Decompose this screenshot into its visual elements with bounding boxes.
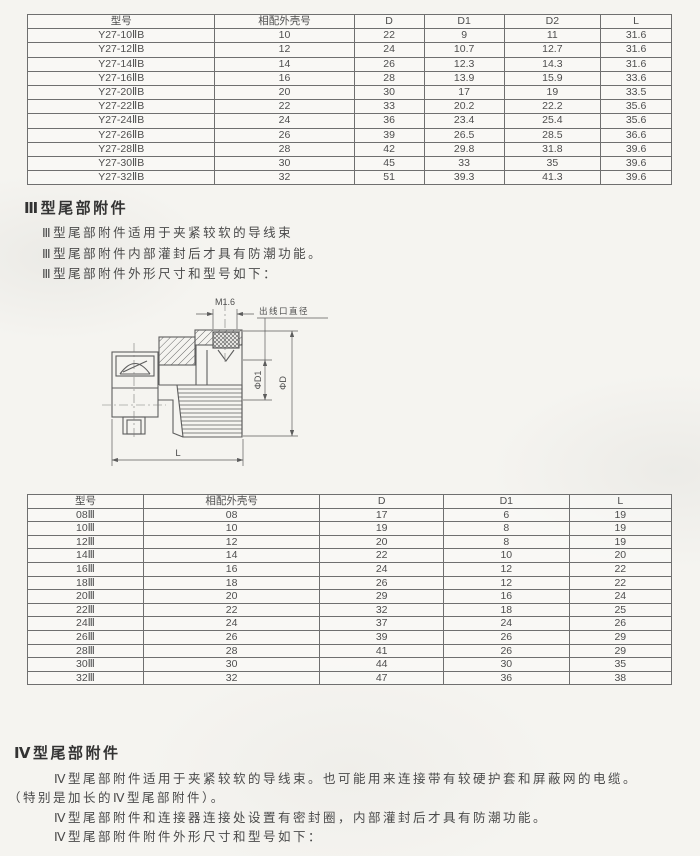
knurl-ribs xyxy=(175,389,242,433)
table-cell: 41 xyxy=(320,644,444,658)
table-cell: 32Ⅲ xyxy=(28,671,144,685)
table-cell: 39.6 xyxy=(601,156,672,170)
table-cell: 14.3 xyxy=(504,57,601,71)
table-cell: 10 xyxy=(444,549,570,563)
table-cell: 35 xyxy=(504,156,601,170)
table-row: 32Ⅲ32473638 xyxy=(28,671,672,685)
table-cell: 24 xyxy=(320,562,444,576)
table-cell: 30 xyxy=(215,156,354,170)
section4-line-2: （特别是加长的Ⅳ型尾部附件）。 xyxy=(8,787,226,806)
table-cell: 12.3 xyxy=(424,57,504,71)
table-cell: 12 xyxy=(143,535,319,549)
table-cell: 8 xyxy=(444,522,570,536)
table-cell: Y27-26ⅡB xyxy=(28,128,215,142)
table-cell: 18 xyxy=(444,603,570,617)
section-title-type3: Ⅲ型尾部附件 xyxy=(24,197,128,218)
table-cell: 32 xyxy=(320,603,444,617)
table-cell: 26 xyxy=(354,57,424,71)
table-cell: 25.4 xyxy=(504,114,601,128)
type3-dimension-table: 型号相配外壳号DD1L 08Ⅲ081761910Ⅲ101981912Ⅲ12208… xyxy=(27,494,672,685)
table-cell: 28.5 xyxy=(504,128,601,142)
table-row: Y27-28ⅡB284229.831.839.6 xyxy=(28,142,672,156)
table-cell: 51 xyxy=(354,171,424,185)
table-cell: 30 xyxy=(444,658,570,672)
column-header: L xyxy=(601,15,672,29)
table-cell: 22 xyxy=(215,100,354,114)
table-row: Y27-14ⅡB142612.314.331.6 xyxy=(28,57,672,71)
table-cell: 18 xyxy=(143,576,319,590)
table-cell: 20.2 xyxy=(424,100,504,114)
outlet-diameter-label: 出线口直径 xyxy=(259,306,309,316)
table-row: 16Ⅲ16241222 xyxy=(28,562,672,576)
table-header-row: 型号相配外壳号DD1L xyxy=(28,495,672,509)
table-cell: Y27-16ⅡB xyxy=(28,71,215,85)
table-cell: 22 xyxy=(143,603,319,617)
table-cell: Y27-12ⅡB xyxy=(28,43,215,57)
table-cell: 39 xyxy=(320,630,444,644)
table-row: Y27-30ⅡB3045333539.6 xyxy=(28,156,672,170)
table-cell: 28 xyxy=(143,644,319,658)
table-cell: 20 xyxy=(215,85,354,99)
table-row: 24Ⅲ24372426 xyxy=(28,617,672,631)
table-cell: 33 xyxy=(354,100,424,114)
table-row: Y27-24ⅡB243623.425.435.6 xyxy=(28,114,672,128)
table-cell: 31.6 xyxy=(601,43,672,57)
table-cell: 31.8 xyxy=(504,142,601,156)
column-header: D xyxy=(354,15,424,29)
table-cell: 41.3 xyxy=(504,171,601,185)
d-dimension-label: ΦD xyxy=(278,376,288,390)
table-cell: 24 xyxy=(215,114,354,128)
table-cell: 36 xyxy=(444,671,570,685)
column-header: D1 xyxy=(424,15,504,29)
table-cell: 10.7 xyxy=(424,43,504,57)
table-cell: 37 xyxy=(320,617,444,631)
table-cell: 29 xyxy=(569,630,671,644)
section4-line-1: Ⅳ型尾部附件适用于夹紧较软的导线束。也可能用来连接带有较硬护套和屏蔽网的电缆。 xyxy=(54,768,638,787)
table-cell: 10Ⅲ xyxy=(28,522,144,536)
table-cell: 25 xyxy=(569,603,671,617)
section4-line-4: Ⅳ型尾部附件附件外形尺寸和型号如下： xyxy=(54,826,323,845)
table-cell: 19 xyxy=(320,522,444,536)
column-header: 型号 xyxy=(28,495,144,509)
table-cell: 44 xyxy=(320,658,444,672)
table-cell: 14 xyxy=(215,57,354,71)
table-cell: Y27-32ⅡB xyxy=(28,171,215,185)
table-cell: 19 xyxy=(569,522,671,536)
table-row: Y27-26ⅡB263926.528.536.6 xyxy=(28,128,672,142)
table-cell: 29 xyxy=(320,590,444,604)
table-row: Y27-12ⅡB122410.712.731.6 xyxy=(28,43,672,57)
table-cell: 47 xyxy=(320,671,444,685)
table-cell: 23.4 xyxy=(424,114,504,128)
table-cell: 29.8 xyxy=(424,142,504,156)
table-cell: Y27-10ⅡB xyxy=(28,29,215,43)
table-cell: 28Ⅲ xyxy=(28,644,144,658)
table-cell: 39 xyxy=(354,128,424,142)
table-row: 10Ⅲ1019819 xyxy=(28,522,672,536)
table-row: 30Ⅲ30443035 xyxy=(28,658,672,672)
table-cell: 19 xyxy=(504,85,601,99)
table-row: Y27-32ⅡB325139.341.339.6 xyxy=(28,171,672,185)
table-cell: 22 xyxy=(569,576,671,590)
table-row: 18Ⅲ18261222 xyxy=(28,576,672,590)
table-cell: 14 xyxy=(143,549,319,563)
table-cell: 22 xyxy=(569,562,671,576)
table-cell: Y27-30ⅡB xyxy=(28,156,215,170)
table-cell: 26Ⅲ xyxy=(28,630,144,644)
table-cell: 14Ⅲ xyxy=(28,549,144,563)
column-header: D1 xyxy=(444,495,570,509)
table-cell: 35.6 xyxy=(601,100,672,114)
table-cell: 19 xyxy=(569,535,671,549)
section3-line-2: Ⅲ型尾部附件内部灌封后才具有防潮功能。 xyxy=(42,243,323,262)
table-cell: 26 xyxy=(444,630,570,644)
thread-dimension-label: M1.6 xyxy=(215,297,235,307)
table-cell: 20 xyxy=(569,549,671,563)
table-cell: 17 xyxy=(320,508,444,522)
table-cell: 20 xyxy=(320,535,444,549)
table-cell: 39.3 xyxy=(424,171,504,185)
table-row: Y27-16ⅡB162813.915.933.6 xyxy=(28,71,672,85)
table-cell: 12Ⅲ xyxy=(28,535,144,549)
table-cell: 33 xyxy=(424,156,504,170)
table-cell: 20 xyxy=(143,590,319,604)
table-cell: Y27-24ⅡB xyxy=(28,114,215,128)
table-header-row: 型号相配外壳号DD1D2L xyxy=(28,15,672,29)
column-header: L xyxy=(569,495,671,509)
table-row: 26Ⅲ26392629 xyxy=(28,630,672,644)
table-cell: 24 xyxy=(354,43,424,57)
table-cell: 12 xyxy=(215,43,354,57)
table-cell: Y27-14ⅡB xyxy=(28,57,215,71)
table-cell: 32 xyxy=(143,671,319,685)
type3-tail-accessory-drawing: M1.6 出线口直径 ΦD1 ΦD L xyxy=(85,288,335,480)
table-cell: 39.6 xyxy=(601,142,672,156)
column-header: 相配外壳号 xyxy=(215,15,354,29)
section3-line-3: Ⅲ型尾部附件外形尺寸和型号如下： xyxy=(42,263,278,282)
table-cell: 10 xyxy=(143,522,319,536)
table-row: 28Ⅲ28412629 xyxy=(28,644,672,658)
table-cell: 36.6 xyxy=(601,128,672,142)
table-cell: 22 xyxy=(320,549,444,563)
table-cell: 18Ⅲ xyxy=(28,576,144,590)
table-cell: 24 xyxy=(569,590,671,604)
table-cell: 26 xyxy=(569,617,671,631)
table-cell: 33.5 xyxy=(601,85,672,99)
table-cell: 26 xyxy=(444,644,570,658)
table-cell: 28 xyxy=(354,71,424,85)
table-cell: 26 xyxy=(320,576,444,590)
table-cell: 22Ⅲ xyxy=(28,603,144,617)
table-cell: 30 xyxy=(143,658,319,672)
length-dimension-label: L xyxy=(175,448,180,459)
column-header: D2 xyxy=(504,15,601,29)
column-header: 相配外壳号 xyxy=(143,495,319,509)
table-cell: 20Ⅲ xyxy=(28,590,144,604)
table-row: Y27-20ⅡB2030171933.5 xyxy=(28,85,672,99)
table-cell: 29 xyxy=(569,644,671,658)
table-cell: 8 xyxy=(444,535,570,549)
table-cell: 9 xyxy=(424,29,504,43)
table-cell: 26.5 xyxy=(424,128,504,142)
table-cell: 32 xyxy=(215,171,354,185)
table-cell: 30Ⅲ xyxy=(28,658,144,672)
table-cell: 22 xyxy=(354,29,424,43)
section3-line-1: Ⅲ型尾部附件适用于夹紧较软的导线束 xyxy=(42,222,293,241)
table-row: Y27-22ⅡB223320.222.235.6 xyxy=(28,100,672,114)
table-cell: 38 xyxy=(569,671,671,685)
table-cell: 10 xyxy=(215,29,354,43)
table-cell: 45 xyxy=(354,156,424,170)
table-cell: 31.6 xyxy=(601,29,672,43)
table-cell: 28 xyxy=(215,142,354,156)
table-cell: 24 xyxy=(444,617,570,631)
table-cell: Y27-28ⅡB xyxy=(28,142,215,156)
table-cell: 42 xyxy=(354,142,424,156)
section4-line-3: Ⅳ型尾部附件和连接器连接处设置有密封圈，内部灌封后才具有防潮功能。 xyxy=(54,807,548,826)
table-cell: Y27-22ⅡB xyxy=(28,100,215,114)
table-cell: 22.2 xyxy=(504,100,601,114)
table-cell: 08Ⅲ xyxy=(28,508,144,522)
table-cell: 39.6 xyxy=(601,171,672,185)
table-cell: 16 xyxy=(215,71,354,85)
table-cell: 33.6 xyxy=(601,71,672,85)
table-cell: 17 xyxy=(424,85,504,99)
table-cell: 12 xyxy=(444,562,570,576)
table-cell: 24 xyxy=(143,617,319,631)
table-row: 22Ⅲ22321825 xyxy=(28,603,672,617)
table-row: 14Ⅲ14221020 xyxy=(28,549,672,563)
table-cell: 31.6 xyxy=(601,57,672,71)
table-cell: 30 xyxy=(354,85,424,99)
column-header: 型号 xyxy=(28,15,215,29)
table-cell: Y27-20ⅡB xyxy=(28,85,215,99)
d1-dimension-label: ΦD1 xyxy=(253,371,263,390)
table-cell: 16 xyxy=(444,590,570,604)
table-cell: 11 xyxy=(504,29,601,43)
table-cell: 26 xyxy=(143,630,319,644)
table-cell: 12 xyxy=(444,576,570,590)
table-cell: 15.9 xyxy=(504,71,601,85)
table-cell: 24Ⅲ xyxy=(28,617,144,631)
column-header: D xyxy=(320,495,444,509)
table-cell: 16Ⅲ xyxy=(28,562,144,576)
table-cell: 12.7 xyxy=(504,43,601,57)
table-row: 08Ⅲ0817619 xyxy=(28,508,672,522)
table-cell: 26 xyxy=(215,128,354,142)
section-title-type4: Ⅳ型尾部附件 xyxy=(14,742,120,763)
table-cell: 08 xyxy=(143,508,319,522)
table-cell: 36 xyxy=(354,114,424,128)
table-cell: 35.6 xyxy=(601,114,672,128)
table-row: 20Ⅲ20291624 xyxy=(28,590,672,604)
table-cell: 35 xyxy=(569,658,671,672)
table-cell: 13.9 xyxy=(424,71,504,85)
table-row: 12Ⅲ1220819 xyxy=(28,535,672,549)
table-cell: 19 xyxy=(569,508,671,522)
table-row: Y27-10ⅡB102291131.6 xyxy=(28,29,672,43)
table-cell: 6 xyxy=(444,508,570,522)
table-cell: 16 xyxy=(143,562,319,576)
y27-iib-dimension-table: 型号相配外壳号DD1D2L Y27-10ⅡB102291131.6Y27-12Ⅱ… xyxy=(27,14,672,185)
